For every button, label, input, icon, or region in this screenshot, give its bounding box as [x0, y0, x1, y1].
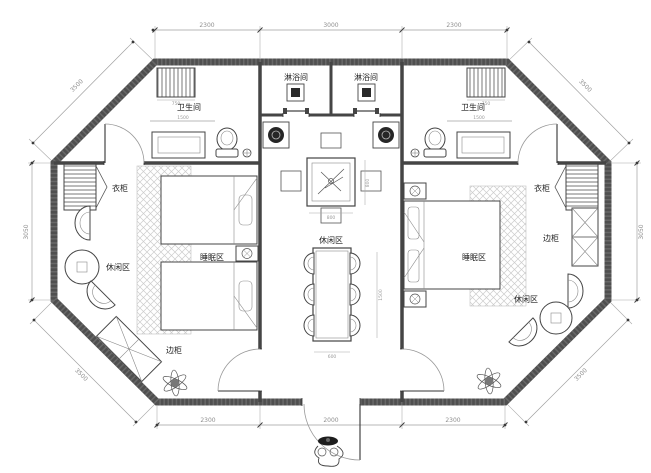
dim-dining-length: 1500 — [378, 289, 384, 301]
dim-tea-side: 800 — [365, 179, 371, 188]
bathroom-left-door — [105, 124, 144, 163]
dim-vanity-left: 1500 — [177, 115, 189, 121]
wardrobe-right-icon — [555, 164, 598, 210]
floor-plan-drawing: 2300 3000 2300 2300 2000 2300 3050 3050 … — [0, 0, 651, 473]
round-table-right-icon — [540, 302, 572, 334]
main-entrance-door — [304, 404, 360, 460]
dim-side-left: 3050 — [23, 224, 30, 239]
armchair-icon — [75, 206, 90, 240]
right-bedroom: 衣柜 边柜 睡眠区 — [404, 164, 598, 394]
armchair-icon — [568, 274, 583, 308]
label-shower-right: 淋浴间 — [354, 72, 378, 82]
dim-side-right: 3050 — [638, 224, 645, 239]
towel-rack-icon — [467, 68, 505, 97]
label-shower-left: 淋浴间 — [284, 72, 308, 82]
dim-tea-bottom: 800 — [327, 215, 336, 221]
label-side-cabinet-left: 边柜 — [166, 345, 182, 355]
dim-dining-width: 600 — [328, 354, 337, 360]
dim-bottom-middle: 2000 — [323, 417, 338, 424]
dim-diagonal-top-right: 3500 — [577, 78, 593, 94]
entrance-figure-icon — [315, 437, 343, 467]
label-bathroom-right: 卫生间 — [461, 102, 485, 112]
central-zone: 800 800 休闲区 1500 600 — [263, 122, 399, 466]
label-leisure-center: 休闲区 — [319, 235, 343, 245]
label-wardrobe-right: 衣柜 — [534, 183, 550, 193]
left-room-door — [218, 349, 260, 391]
nightstand-right-top-icon — [404, 183, 426, 199]
plant-icon — [162, 370, 189, 397]
floor-drain-left-icon — [243, 149, 251, 157]
plant-icon — [476, 368, 503, 395]
shower-door-track-right — [353, 108, 379, 114]
twin-bed-2-icon — [161, 262, 257, 330]
washbasin-left-icon — [263, 122, 289, 148]
nightstand-right-bottom-icon — [404, 291, 426, 307]
dim-top-right: 2300 — [446, 22, 461, 29]
side-cabinet-right-icon — [572, 208, 598, 266]
bathroom-right-door — [518, 124, 557, 163]
shower-right: 淋浴间 — [353, 72, 379, 114]
dim-diagonal-bottom-left: 3500 — [73, 367, 89, 383]
tea-table-icon — [307, 158, 355, 206]
label-sleeping-left: 睡眠区 — [200, 253, 224, 262]
dim-diagonal-bottom-right: 3500 — [573, 367, 589, 383]
dim-bottom-right: 2300 — [445, 417, 460, 424]
shower-left: 淋浴间 — [283, 72, 309, 114]
vanity-right-icon — [457, 132, 510, 158]
label-sleeping-right: 睡眠区 — [462, 253, 486, 262]
dim-vanity-right: 1500 — [473, 115, 485, 121]
shower-door-track-left — [283, 108, 309, 114]
floor-plan-canvas: 2300 3000 2300 2300 2000 2300 3050 3050 … — [0, 0, 651, 473]
label-leisure-right: 休闲区 — [514, 294, 538, 304]
dim-diagonal-top-left: 3500 — [69, 78, 85, 94]
washbasin-right-icon — [373, 122, 399, 148]
nightstand-left-icon — [236, 246, 258, 261]
dim-bottom-left: 2300 — [200, 417, 215, 424]
bathroom-right: 750 卫生间 1500 — [411, 68, 512, 158]
twin-bed-1-icon — [161, 176, 257, 244]
label-side-cabinet-right: 边柜 — [543, 233, 559, 243]
toilet-right-icon — [424, 128, 446, 157]
armchair-icon — [509, 318, 544, 353]
label-leisure-left: 休闲区 — [106, 262, 130, 272]
label-bathroom-left: 卫生间 — [177, 102, 201, 112]
toilet-left-icon — [216, 128, 238, 157]
dim-top-middle: 3000 — [323, 22, 338, 29]
towel-rack-icon — [157, 68, 195, 97]
floor-drain-right-icon — [411, 149, 419, 157]
left-bedroom: 衣柜 睡眠区 休闲区 — [64, 164, 258, 396]
right-room-door — [402, 349, 444, 391]
dining-table-icon — [313, 248, 351, 341]
armchair-icon — [80, 281, 115, 316]
wardrobe-left-icon — [64, 164, 107, 210]
label-wardrobe-left: 衣柜 — [112, 183, 128, 193]
dimension-annotations: 2300 3000 2300 2300 2000 2300 3050 3050 … — [23, 22, 645, 429]
double-bed-icon — [404, 201, 500, 289]
vanity-left-icon — [152, 132, 205, 158]
dim-top-left: 2300 — [199, 22, 214, 29]
round-table-left-icon — [65, 250, 99, 284]
bathroom-left: 750 卫生间 1500 — [150, 68, 251, 158]
